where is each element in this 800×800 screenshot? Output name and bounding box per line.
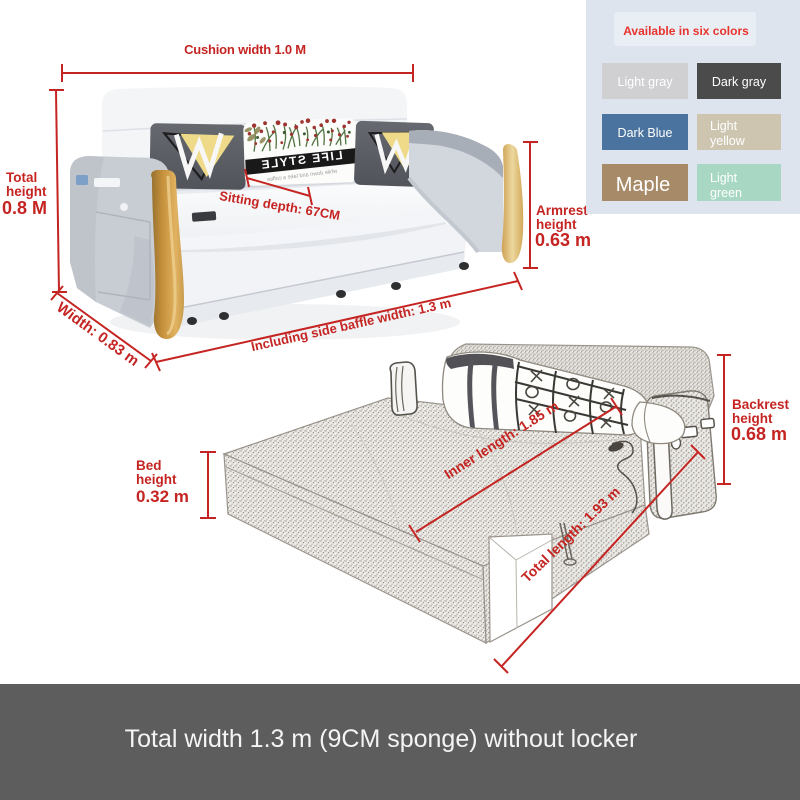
svg-text:Total width 1.3 m (9CM sponge): Total width 1.3 m (9CM sponge) without l… — [125, 725, 638, 753]
svg-text:Light gray: Light gray — [618, 75, 674, 89]
svg-text:0.68 m: 0.68 m — [731, 424, 787, 444]
svg-text:Total: Total — [6, 170, 37, 185]
svg-text:Backrest: Backrest — [732, 397, 790, 412]
svg-text:Maple: Maple — [616, 174, 670, 196]
svg-text:Bed: Bed — [136, 458, 162, 473]
svg-text:0.8 M: 0.8 M — [2, 198, 47, 218]
svg-text:Cushion width 1.0 M: Cushion width 1.0 M — [184, 42, 306, 57]
svg-text:Dark gray: Dark gray — [712, 75, 767, 89]
svg-text:Light: Light — [710, 171, 738, 185]
svg-text:0.63 m: 0.63 m — [535, 230, 591, 250]
svg-text:green: green — [710, 186, 742, 200]
svg-text:Armrest: Armrest — [536, 203, 588, 218]
svg-text:0.32 m: 0.32 m — [136, 487, 189, 506]
svg-text:yellow: yellow — [710, 134, 746, 148]
svg-text:Light: Light — [710, 119, 738, 133]
svg-text:Dark Blue: Dark Blue — [618, 126, 673, 140]
svg-text:height: height — [136, 472, 177, 487]
svg-text:height: height — [6, 184, 47, 199]
svg-text:Available in six colors: Available in six colors — [623, 24, 749, 38]
